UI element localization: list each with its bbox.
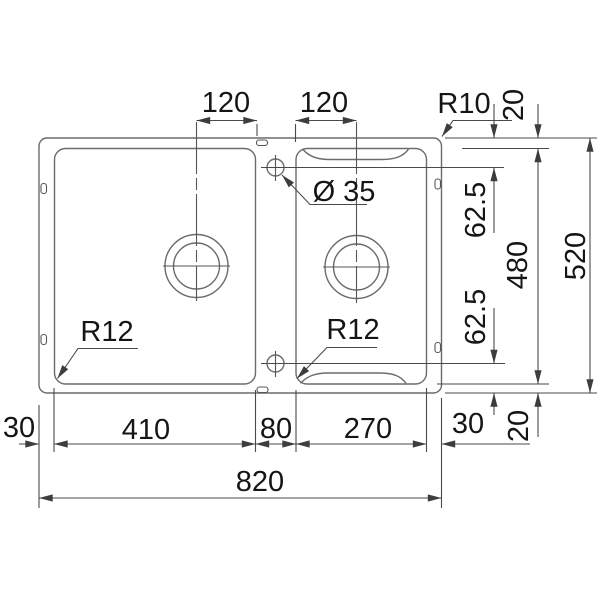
label-820: 820 (236, 466, 284, 498)
label-20-top: 20 (498, 89, 530, 121)
leader-r10 (442, 121, 512, 137)
label-30-left: 30 (3, 412, 35, 444)
label-480: 480 (502, 241, 534, 289)
right-bowl-bottom-contour (301, 373, 407, 383)
label-20-bottom: 20 (503, 410, 535, 442)
label-62-5-top: 62.5 (460, 182, 492, 238)
clip-right-bottom (435, 343, 441, 353)
sink-outer-rim (39, 138, 442, 393)
clip-top-middle (257, 140, 268, 146)
label-520: 520 (560, 232, 592, 280)
label-270: 270 (344, 413, 392, 445)
clip-left-top (41, 184, 47, 194)
label-62-5-bottom: 62.5 (460, 289, 492, 345)
sink-body (39, 122, 442, 393)
label-80: 80 (260, 413, 292, 445)
leader-r12-left (58, 349, 139, 379)
label-r10: R10 (437, 88, 490, 120)
clip-left-bottom (41, 335, 47, 345)
label-410: 410 (122, 414, 170, 446)
right-bowl-top-contour (303, 149, 409, 160)
label-120-left: 120 (202, 87, 250, 119)
label-r12-right: R12 (326, 314, 379, 346)
clip-bottom-middle (257, 387, 268, 393)
label-r12-left: R12 (80, 316, 133, 348)
label-120-right: 120 (300, 87, 348, 119)
clip-right-top (435, 179, 441, 189)
label-dia-35: Ø 35 (313, 176, 376, 208)
label-30-right: 30 (452, 408, 484, 440)
sink-technical-drawing: 120 120 R10 Ø 35 R12 R12 30 410 80 270 3… (0, 0, 600, 600)
